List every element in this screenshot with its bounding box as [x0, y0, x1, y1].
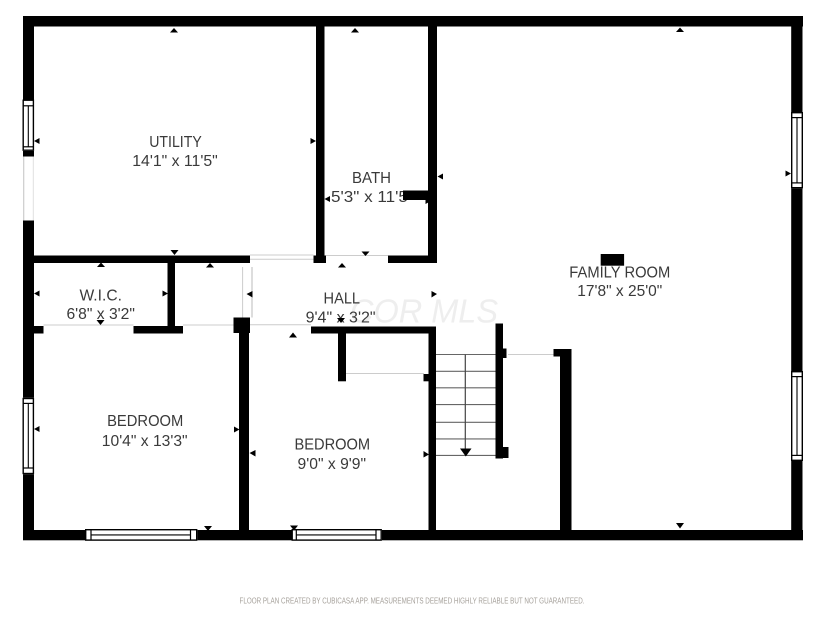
svg-text:9'0" x 9'9": 9'0" x 9'9": [298, 456, 367, 473]
svg-text:5'3" x 11'5": 5'3" x 11'5": [331, 189, 414, 206]
svg-text:BEDROOM: BEDROOM: [294, 436, 370, 453]
svg-text:BATH: BATH: [352, 170, 391, 187]
svg-text:14'1" x 11'5": 14'1" x 11'5": [132, 153, 218, 170]
svg-text:W.I.C.: W.I.C.: [79, 287, 122, 304]
svg-text:17'8" x 25'0": 17'8" x 25'0": [577, 283, 662, 300]
svg-text:BEDROOM: BEDROOM: [107, 413, 183, 430]
svg-text:10'4" x 13'3": 10'4" x 13'3": [102, 433, 188, 450]
svg-text:FAMILY ROOM: FAMILY ROOM: [569, 264, 670, 281]
svg-text:FLOOR PLAN CREATED BY CUBICASA: FLOOR PLAN CREATED BY CUBICASA APP. MEAS…: [240, 597, 585, 606]
svg-text:UTILITY: UTILITY: [149, 134, 202, 151]
svg-text:9'4" x 3'2": 9'4" x 3'2": [306, 309, 376, 326]
svg-text:HALL: HALL: [324, 291, 361, 308]
